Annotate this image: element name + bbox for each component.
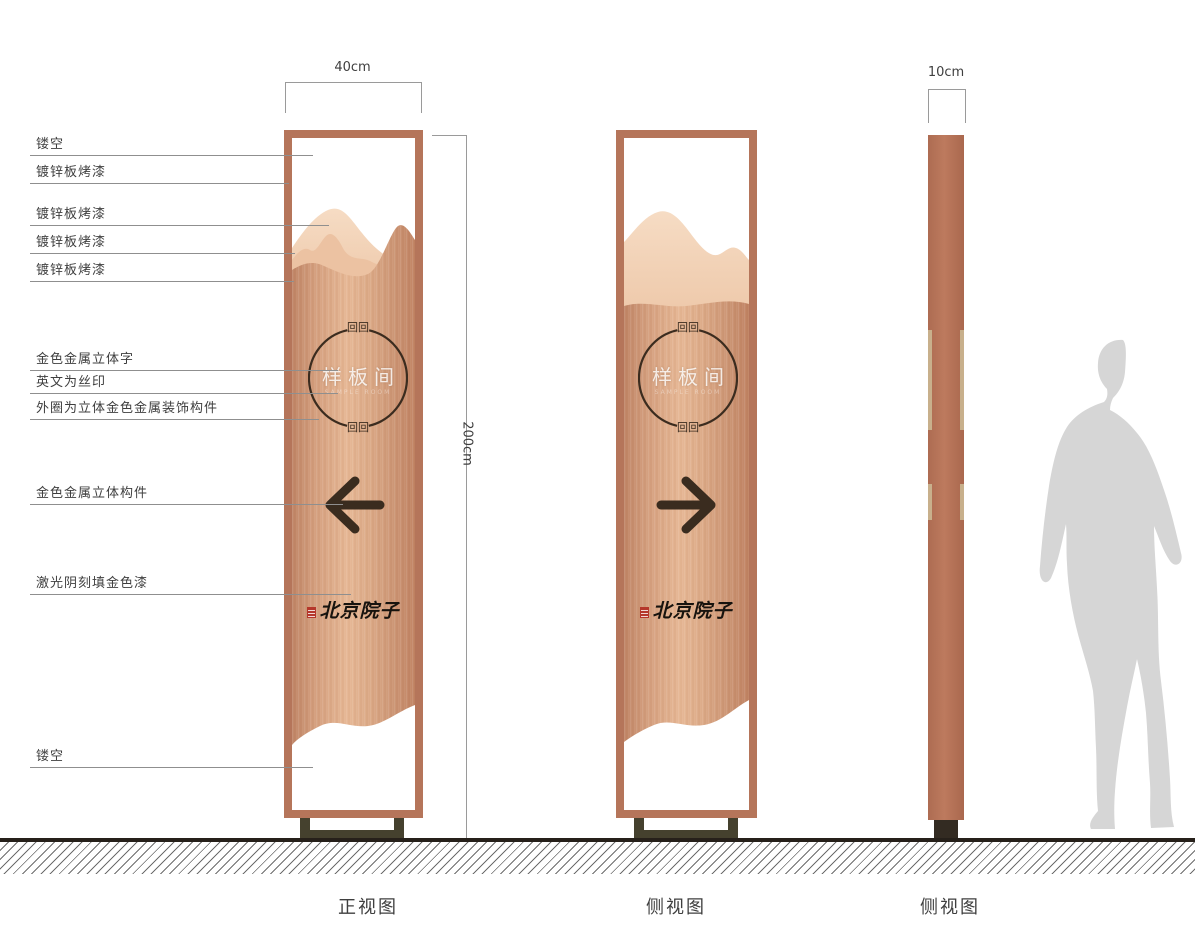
sign-base [300,818,404,838]
red-seal-icon [640,607,649,618]
brand-calligraphy: 北京院子 [292,596,415,623]
callout-label: 激光阴刻填金色漆 [36,576,148,591]
meander-ornament-icon: 回回 [308,323,408,333]
gold-ring-edge [960,330,964,430]
dim-height-line [466,135,467,840]
callout-label: 外圈为立体金色金属装饰构件 [36,401,218,416]
callout-label: 镀锌板烤漆 [36,165,106,180]
callout-laser-engrave: 激光阴刻填金色漆 [30,572,351,595]
plaque-text: 样板间 [638,361,738,390]
callout-galvanized-1: 镀锌板烤漆 [30,161,289,184]
callout-hollow-top: 镂空 [30,133,313,156]
front-view-sign: 回回 回回 样板间 SAMPLE ROOM 北京院子 [284,130,423,818]
plaque-english-subtext: SAMPLE ROOM [638,389,738,396]
ground-hatch [0,842,1195,874]
callout-galvanized-4: 镀锌板烤漆 [30,259,294,282]
left-arrow-icon [318,470,388,540]
dim-side-width-bracket [928,89,966,123]
brand-text: 北京院子 [652,600,732,622]
callout-galvanized-2: 镀锌板烤漆 [30,203,329,226]
callout-outer-ring: 外圈为立体金色金属装饰构件 [30,397,319,420]
dim-height-tick [432,135,466,136]
callout-label: 英文为丝印 [36,375,106,390]
meander-ornament-icon: 回回 [638,323,738,333]
meander-ornament-icon: 回回 [638,423,738,433]
right-arrow-icon [653,470,723,540]
callout-label: 镀锌板烤漆 [36,207,106,222]
sign-base [634,818,738,838]
callout-silkscreen: 英文为丝印 [30,371,338,394]
brand-text: 北京院子 [319,600,399,622]
gold-ring-edge [928,330,932,430]
callout-label: 金色金属立体构件 [36,486,148,501]
gold-arrow-edge [960,484,964,520]
callout-label: 镀锌板烤漆 [36,235,106,250]
callout-hollow-bottom: 镂空 [30,745,313,768]
view-label-side1: 侧视图 [616,893,736,919]
edge-view-sign [928,135,964,820]
meander-ornament-icon: 回回 [308,423,408,433]
dim-height: 200cm [460,418,475,470]
callout-label: 镂空 [36,137,64,152]
red-seal-icon [307,607,316,618]
callout-label: 镀锌板烤漆 [36,263,106,278]
brand-calligraphy: 北京院子 [624,596,749,623]
gold-arrow-edge [928,484,932,520]
circular-emblem: 回回 回回 样板间 SAMPLE ROOM [638,328,738,428]
side-view-sign: 回回 回回 样板间 SAMPLE ROOM 北京院子 [616,130,757,818]
callout-galvanized-3: 镀锌板烤漆 [30,231,295,254]
callout-label: 镂空 [36,749,64,764]
ground-line [0,838,1195,842]
callout-gold-component: 金色金属立体构件 [30,482,343,505]
dim-front-width-bracket [285,82,422,113]
dim-front-width: 40cm [285,60,420,75]
human-silhouette [1033,334,1191,836]
callout-label: 金色金属立体字 [36,352,134,367]
dim-side-width: 10cm [910,65,982,80]
callout-gold-letters: 金色金属立体字 [30,348,338,371]
view-label-front: 正视图 [308,893,428,919]
signage-drawing-canvas: 镂空 镀锌板烤漆 镀锌板烤漆 镀锌板烤漆 镀锌板烤漆 金色金属立体字 英文为丝印… [0,0,1195,927]
view-label-side2: 侧视图 [890,893,1010,919]
